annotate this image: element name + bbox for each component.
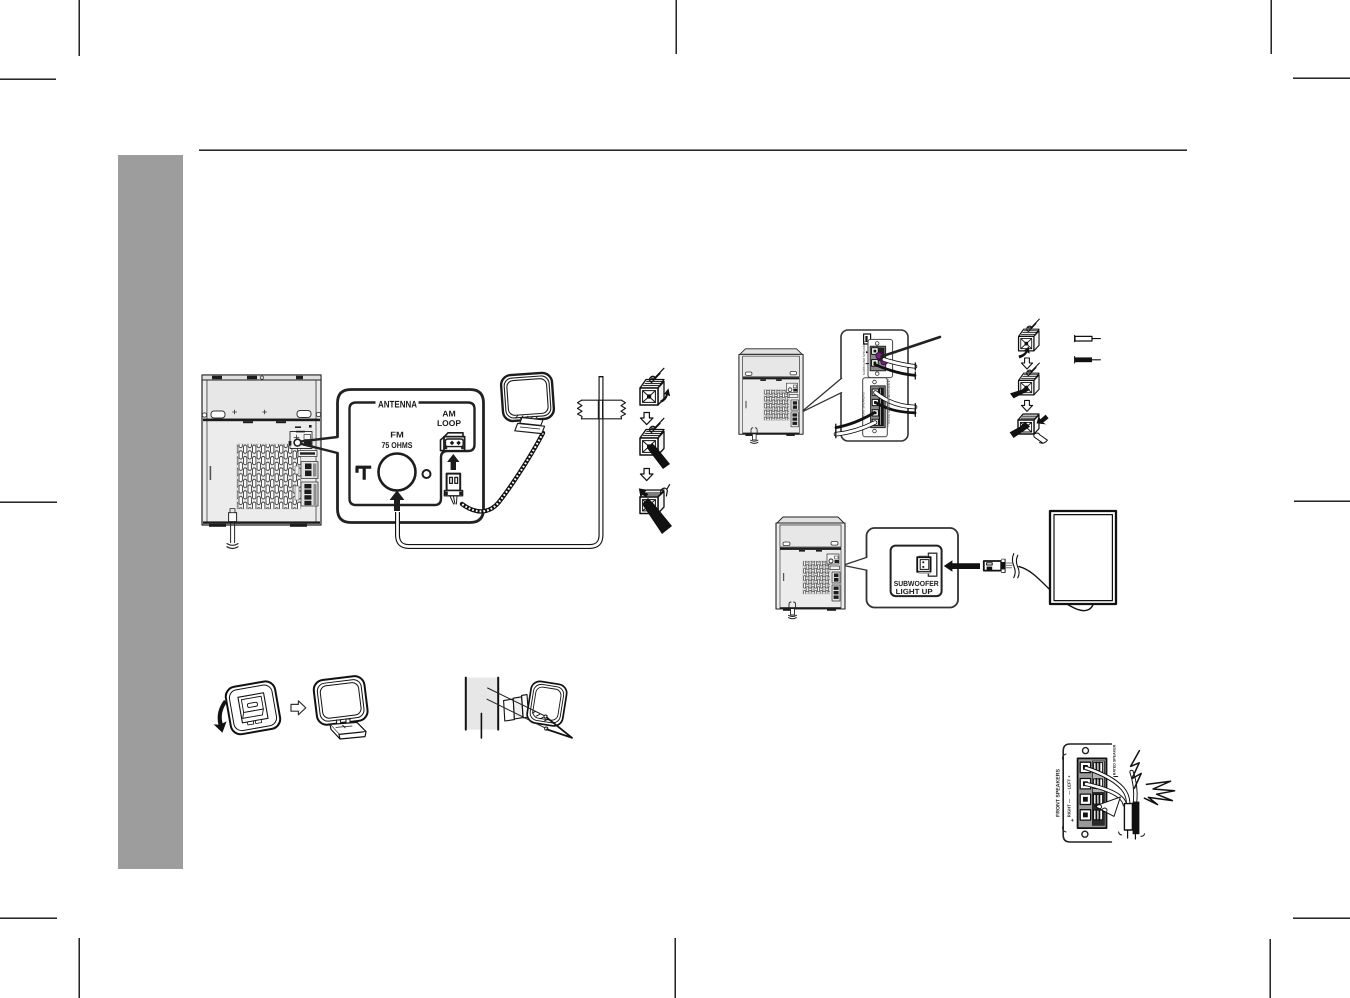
svg-text:RATED SPEAKER: RATED SPEAKER <box>1112 744 1116 775</box>
svg-text:— LEFT +: — LEFT + <box>1067 775 1072 795</box>
svg-text:75 OHMS: 75 OHMS <box>382 440 413 450</box>
svg-text:SURROUND SPEAKERS: SURROUND SPEAKERS <box>862 341 866 375</box>
svg-text:FRONT SPEAKERS: FRONT SPEAKERS <box>1056 769 1062 817</box>
svg-text:LOOP: LOOP <box>437 418 461 428</box>
svg-text:AM: AM <box>442 409 456 419</box>
svg-text:ANTENNA: ANTENNA <box>378 400 417 411</box>
svg-text:RIGHT —: RIGHT — <box>1067 798 1072 817</box>
svg-text:LIGHT UP: LIGHT UP <box>896 587 933 596</box>
svg-text:FRONT SPEAKERS: FRONT SPEAKERS <box>862 392 866 419</box>
svg-text:FM: FM <box>390 430 404 440</box>
